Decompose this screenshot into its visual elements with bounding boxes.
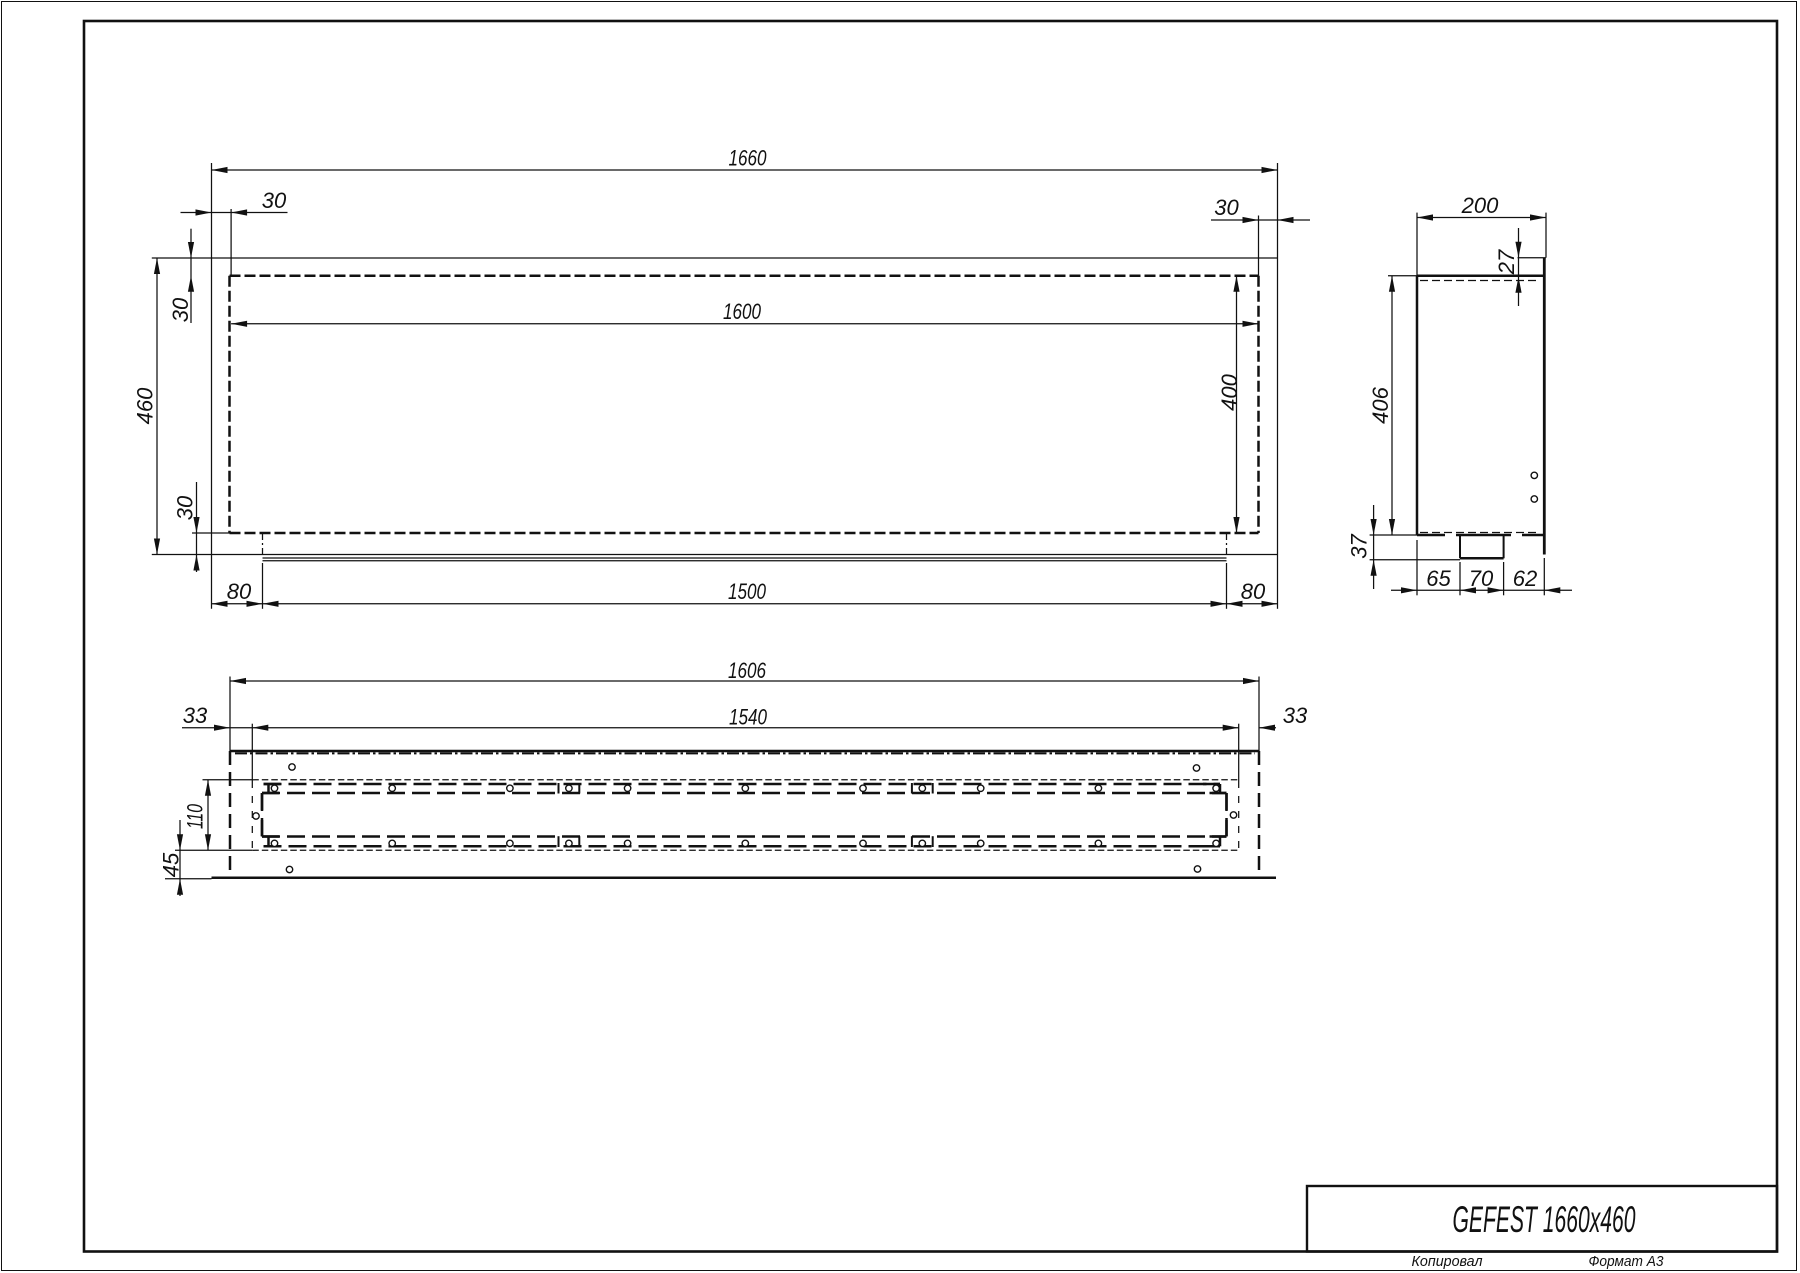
svg-text:400: 400 xyxy=(1217,373,1242,410)
svg-text:1606: 1606 xyxy=(728,658,767,683)
svg-text:70: 70 xyxy=(1469,566,1494,591)
svg-text:1500: 1500 xyxy=(728,579,767,604)
svg-text:1540: 1540 xyxy=(729,704,768,729)
svg-text:1600: 1600 xyxy=(723,299,762,324)
svg-text:62: 62 xyxy=(1513,566,1537,591)
svg-text:30: 30 xyxy=(1214,195,1239,220)
svg-text:45: 45 xyxy=(158,852,183,877)
svg-text:30: 30 xyxy=(172,495,197,520)
svg-text:1660: 1660 xyxy=(729,145,768,170)
svg-text:37: 37 xyxy=(1346,534,1371,559)
svg-text:200: 200 xyxy=(1461,193,1499,218)
svg-text:110: 110 xyxy=(182,803,207,829)
svg-text:30: 30 xyxy=(168,297,193,322)
svg-text:80: 80 xyxy=(227,579,252,604)
svg-text:GEFEST 1660x460: GEFEST 1660x460 xyxy=(1453,1199,1636,1240)
svg-text:Формат А3: Формат А3 xyxy=(1589,1253,1665,1270)
svg-text:65: 65 xyxy=(1426,566,1451,591)
svg-text:406: 406 xyxy=(1368,386,1393,423)
svg-text:460: 460 xyxy=(132,387,157,424)
svg-text:33: 33 xyxy=(1283,703,1308,728)
svg-text:30: 30 xyxy=(262,188,287,213)
svg-text:80: 80 xyxy=(1241,579,1266,604)
svg-text:27: 27 xyxy=(1494,249,1519,275)
svg-text:Копировал: Копировал xyxy=(1412,1253,1484,1270)
svg-text:33: 33 xyxy=(183,703,208,728)
